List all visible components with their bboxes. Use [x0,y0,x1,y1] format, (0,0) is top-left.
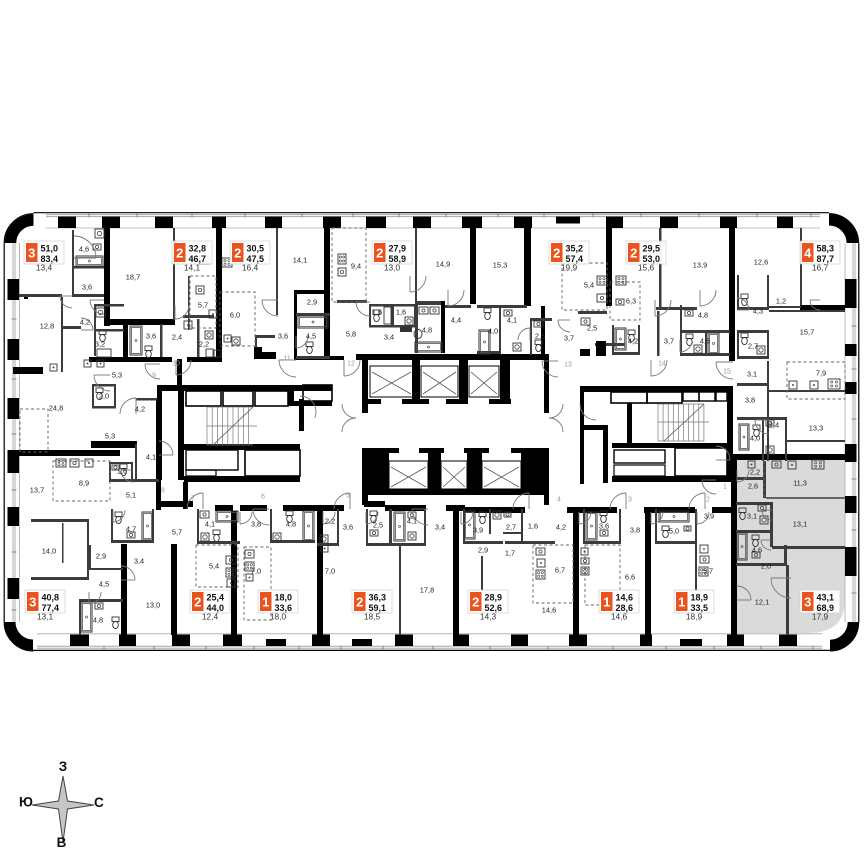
svg-text:3: 3 [628,497,632,504]
svg-text:5,3: 5,3 [105,432,115,441]
svg-text:С: С [94,795,104,810]
svg-text:3,7: 3,7 [564,334,574,343]
svg-text:3,4: 3,4 [384,333,394,342]
svg-text:13: 13 [564,362,572,369]
svg-text:11: 11 [283,356,290,363]
svg-text:15,7: 15,7 [800,328,814,337]
svg-text:14,6: 14,6 [611,612,628,622]
svg-text:6,7: 6,7 [555,566,565,575]
svg-text:7,0: 7,0 [251,567,261,576]
svg-text:4,5: 4,5 [700,337,710,346]
svg-text:1: 1 [603,595,610,610]
svg-text:2: 2 [376,246,383,261]
svg-text:7,9: 7,9 [816,369,826,378]
svg-text:3,2: 3,2 [95,340,105,349]
svg-text:9,4: 9,4 [351,262,361,271]
svg-text:4,6: 4,6 [752,546,762,555]
svg-text:30,5: 30,5 [247,244,265,254]
svg-text:3,1: 3,1 [747,512,757,521]
svg-text:4: 4 [557,497,561,504]
svg-text:27,9: 27,9 [389,244,407,254]
svg-text:2,2: 2,2 [325,517,335,526]
svg-text:1: 1 [723,484,727,491]
svg-text:2,5: 2,5 [587,324,597,333]
svg-text:1,6: 1,6 [372,308,382,317]
svg-text:3,6: 3,6 [82,283,92,292]
svg-text:18,7: 18,7 [126,273,140,282]
svg-text:58,3: 58,3 [817,244,835,254]
svg-text:17,8: 17,8 [420,586,434,595]
svg-text:2: 2 [553,246,560,261]
svg-text:14,6: 14,6 [616,593,634,603]
svg-text:2,5: 2,5 [373,521,383,530]
svg-text:16,4: 16,4 [242,263,259,273]
svg-text:13,1: 13,1 [37,612,54,622]
svg-text:3,6: 3,6 [146,332,156,341]
svg-text:4,5: 4,5 [99,580,109,589]
svg-text:4,8: 4,8 [286,520,296,529]
svg-text:17,9: 17,9 [812,612,829,622]
svg-text:32,8: 32,8 [189,244,207,254]
svg-text:4,0: 4,0 [488,327,498,336]
svg-text:3: 3 [804,595,811,610]
svg-text:7,0: 7,0 [325,567,335,576]
svg-text:4,2: 4,2 [628,337,638,346]
svg-text:5,7: 5,7 [172,528,182,537]
svg-text:6: 6 [261,494,265,501]
svg-text:2: 2 [194,595,201,610]
svg-text:З: З [59,759,67,774]
svg-text:2: 2 [356,595,363,610]
svg-text:28,9: 28,9 [485,593,503,603]
svg-text:18,0: 18,0 [275,593,293,603]
svg-text:3,6: 3,6 [599,522,609,531]
svg-text:5,1: 5,1 [126,491,136,500]
svg-text:6,6: 6,6 [625,573,635,582]
svg-text:4,2: 4,2 [556,523,566,532]
svg-text:2,2: 2,2 [199,340,209,349]
svg-text:14,6: 14,6 [542,606,556,615]
svg-text:18,9: 18,9 [691,593,709,603]
svg-text:1,6: 1,6 [528,522,538,531]
svg-text:2: 2 [706,497,710,504]
svg-text:14: 14 [658,361,666,368]
svg-text:12,4: 12,4 [202,612,219,622]
svg-text:8,9: 8,9 [79,479,89,488]
svg-text:10: 10 [172,361,180,368]
svg-text:В: В [57,835,67,850]
svg-text:14,1: 14,1 [293,256,307,265]
svg-text:3,9: 3,9 [704,512,714,521]
svg-text:2,7: 2,7 [506,523,516,532]
svg-text:2,0: 2,0 [99,392,109,401]
svg-text:14,3: 14,3 [480,612,497,622]
svg-text:4,1: 4,1 [146,453,156,462]
svg-text:Ю: Ю [19,795,33,810]
svg-text:2,9: 2,9 [307,298,317,307]
svg-text:6,3: 6,3 [626,297,636,306]
svg-text:4,8: 4,8 [422,326,432,335]
svg-text:3,8: 3,8 [630,526,640,535]
svg-text:4,8: 4,8 [93,616,103,625]
svg-text:3: 3 [29,595,36,610]
svg-text:4,5: 4,5 [306,332,316,341]
svg-text:2,0: 2,0 [761,562,771,571]
svg-text:3,4: 3,4 [134,557,144,566]
svg-text:13,3: 13,3 [809,424,823,433]
svg-text:4,6: 4,6 [79,245,89,254]
svg-text:4,2: 4,2 [80,318,90,327]
svg-text:3: 3 [28,246,35,261]
svg-text:5: 5 [346,493,350,500]
svg-text:29,5: 29,5 [643,244,661,254]
svg-text:3,8: 3,8 [745,396,755,405]
svg-text:4,7: 4,7 [126,525,136,534]
svg-text:2,7: 2,7 [748,342,758,351]
svg-text:2,5: 2,5 [535,332,545,341]
svg-text:4,8: 4,8 [698,311,708,320]
svg-text:13,9: 13,9 [693,261,707,270]
svg-text:14,1: 14,1 [184,263,201,273]
svg-text:3,8: 3,8 [251,520,261,529]
svg-text:8: 8 [161,488,165,495]
svg-text:51,0: 51,0 [41,244,59,254]
svg-text:4,0: 4,0 [750,434,760,443]
svg-text:35,2: 35,2 [566,244,584,254]
svg-text:2,2: 2,2 [750,468,760,477]
svg-text:5,8: 5,8 [346,330,356,339]
svg-text:4,4: 4,4 [451,316,461,325]
svg-text:19,9: 19,9 [561,263,578,273]
svg-text:12,8: 12,8 [40,322,54,331]
svg-text:14,0: 14,0 [42,547,56,556]
svg-text:3,7: 3,7 [664,337,674,346]
svg-text:9: 9 [152,373,156,380]
svg-text:2,4: 2,4 [172,333,182,342]
svg-text:2: 2 [472,595,479,610]
svg-text:1,6: 1,6 [117,467,127,476]
svg-text:1: 1 [262,595,269,610]
svg-text:4,1: 4,1 [507,316,517,325]
svg-text:4,3: 4,3 [753,307,763,316]
svg-text:3,6: 3,6 [278,332,288,341]
svg-text:13,1: 13,1 [793,520,807,529]
svg-text:13,4: 13,4 [36,263,53,273]
svg-text:24,8: 24,8 [49,404,63,413]
svg-text:3,6: 3,6 [343,523,353,532]
svg-text:5,7: 5,7 [198,301,208,310]
svg-text:15,6: 15,6 [638,263,655,273]
svg-text:4,2: 4,2 [135,405,145,414]
svg-text:18,5: 18,5 [364,612,381,622]
svg-text:2: 2 [176,246,183,261]
svg-text:1,2: 1,2 [776,297,786,306]
svg-text:1,6: 1,6 [396,308,406,317]
svg-text:13,0: 13,0 [146,601,160,610]
svg-text:14,9: 14,9 [436,260,450,269]
svg-text:5,3: 5,3 [112,371,122,380]
svg-text:2,9: 2,9 [478,546,488,555]
svg-text:3,1: 3,1 [747,370,757,379]
svg-text:2: 2 [234,246,241,261]
svg-text:43,1: 43,1 [817,593,835,603]
svg-text:2,6: 2,6 [748,482,758,491]
svg-text:4,1: 4,1 [407,517,417,526]
svg-text:5,4: 5,4 [209,562,219,571]
svg-text:15: 15 [723,369,731,376]
svg-text:2: 2 [630,246,637,261]
svg-text:25,4: 25,4 [207,593,225,603]
svg-text:16,7: 16,7 [812,263,829,273]
svg-text:2,4: 2,4 [769,421,779,430]
svg-text:12: 12 [347,361,355,368]
svg-text:12,6: 12,6 [754,258,768,267]
svg-text:40,8: 40,8 [42,593,60,603]
svg-text:36,3: 36,3 [369,593,387,603]
svg-text:1: 1 [678,595,685,610]
svg-text:6,0: 6,0 [230,311,240,320]
svg-text:4: 4 [804,246,812,261]
svg-text:5,0: 5,0 [669,527,679,536]
svg-text:7: 7 [191,496,195,503]
svg-text:13,0: 13,0 [384,263,401,273]
svg-text:11,3: 11,3 [793,479,807,488]
svg-text:12,1: 12,1 [755,598,769,607]
svg-text:2,9: 2,9 [96,552,106,561]
svg-text:18,0: 18,0 [270,612,287,622]
svg-text:5,4: 5,4 [584,281,594,290]
svg-text:5,7: 5,7 [703,567,713,576]
svg-text:13,7: 13,7 [30,486,44,495]
svg-text:1,7: 1,7 [505,549,515,558]
svg-text:18,9: 18,9 [686,612,703,622]
svg-text:3,9: 3,9 [473,526,483,535]
svg-text:4,1: 4,1 [205,520,215,529]
svg-text:15,3: 15,3 [493,261,507,270]
svg-text:3,4: 3,4 [435,523,445,532]
